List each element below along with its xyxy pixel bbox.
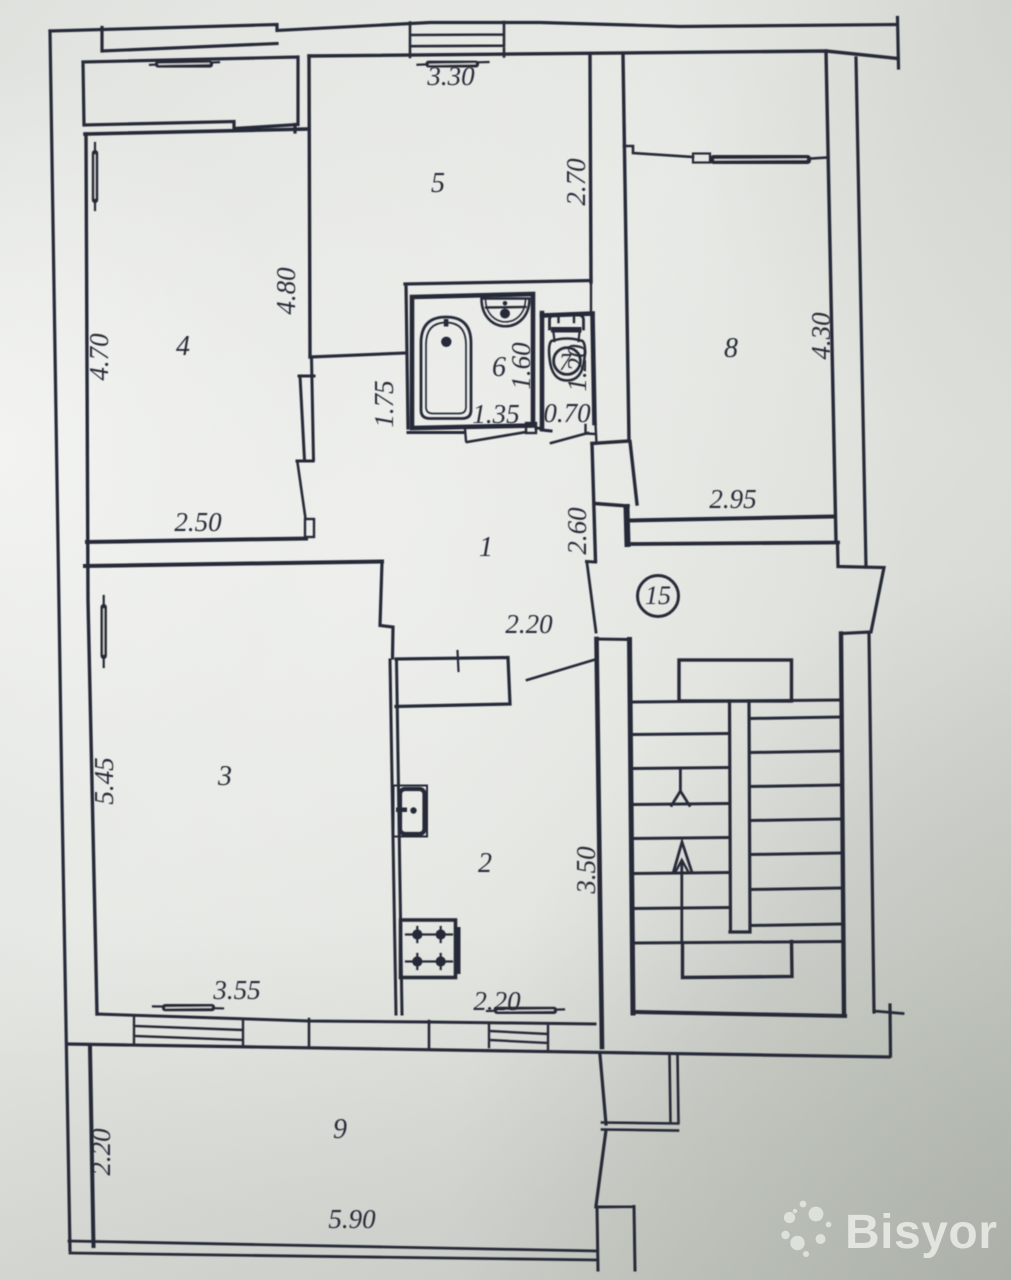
svg-text:6: 6 [492, 352, 506, 383]
svg-text:1.35: 1.35 [472, 399, 519, 429]
svg-text:5.45: 5.45 [89, 757, 119, 804]
svg-text:Bisyor: Bisyor [845, 1206, 997, 1259]
svg-text:3.30: 3.30 [426, 61, 475, 91]
svg-text:4: 4 [176, 331, 190, 362]
svg-text:4.70: 4.70 [84, 333, 114, 381]
svg-text:4.80: 4.80 [271, 267, 301, 315]
svg-text:9: 9 [333, 1114, 347, 1145]
svg-text:1.60: 1.60 [506, 342, 536, 390]
svg-text:4.30: 4.30 [806, 312, 836, 360]
svg-text:2.70: 2.70 [561, 158, 591, 206]
svg-text:2.60: 2.60 [562, 507, 592, 555]
svg-text:2.20: 2.20 [473, 986, 521, 1016]
svg-text:3.55: 3.55 [212, 975, 260, 1005]
svg-text:3: 3 [217, 761, 232, 792]
svg-text:5: 5 [431, 168, 445, 199]
svg-text:3.50: 3.50 [571, 846, 601, 895]
svg-text:1: 1 [479, 532, 493, 563]
svg-text:1.75: 1.75 [369, 380, 399, 427]
svg-text:2.95: 2.95 [709, 484, 756, 514]
svg-text:5.90: 5.90 [328, 1204, 376, 1234]
svg-text:15: 15 [645, 581, 671, 610]
svg-text:8: 8 [724, 333, 738, 364]
svg-text:7: 7 [559, 350, 572, 376]
svg-text:2: 2 [478, 848, 492, 879]
svg-text:2.20: 2.20 [505, 609, 553, 639]
svg-text:0.70: 0.70 [543, 398, 591, 428]
svg-text:2.20: 2.20 [86, 1128, 116, 1176]
svg-text:2.50: 2.50 [174, 507, 222, 537]
